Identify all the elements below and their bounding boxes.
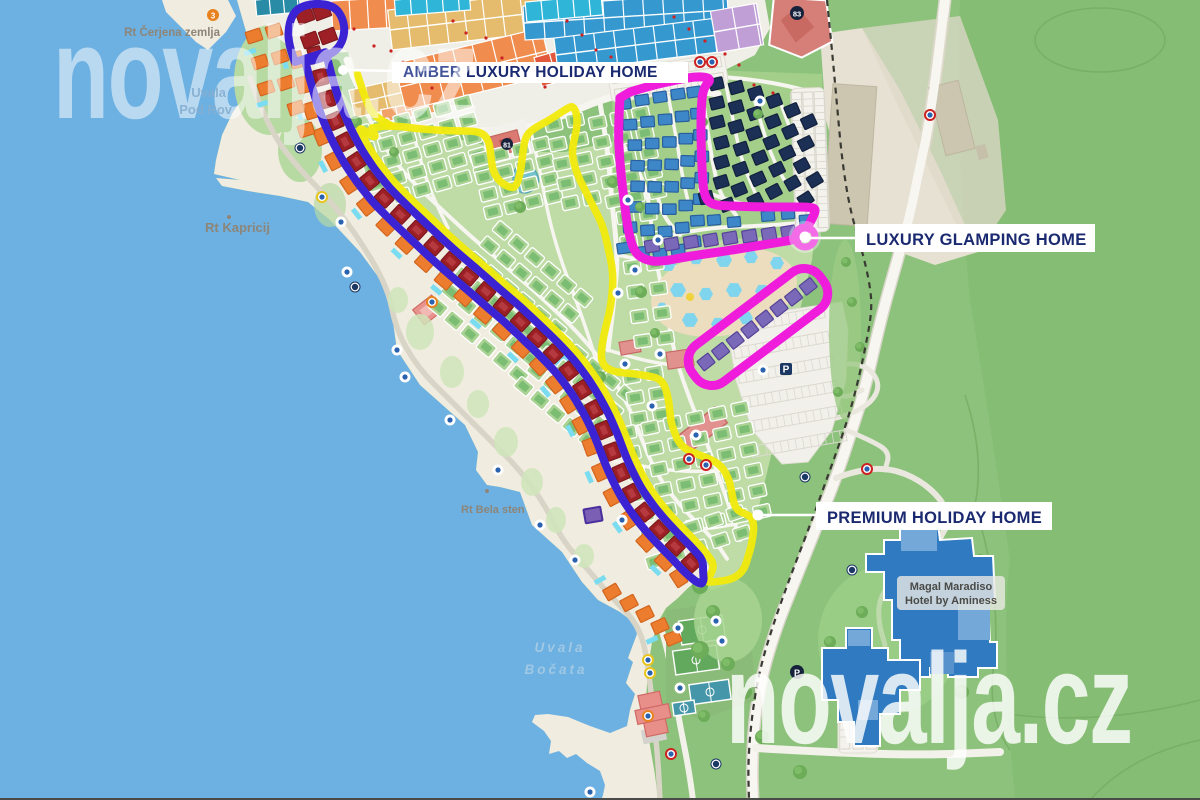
svg-text:Rt Bela sten: Rt Bela sten (461, 504, 525, 516)
svg-text:Hotel by Aminess: Hotel by Aminess (905, 595, 997, 607)
svg-text:83: 83 (793, 10, 801, 19)
svg-text:Rt Kapricij: Rt Kapricij (205, 220, 270, 235)
svg-text:81: 81 (503, 143, 511, 150)
svg-text:Magal Maradiso: Magal Maradiso (910, 581, 993, 593)
svg-text:Uvala: Uvala (191, 85, 226, 100)
svg-text:PREMIUM HOLIDAY HOME: PREMIUM HOLIDAY HOME (827, 509, 1042, 527)
svg-text:Uvala: Uvala (534, 640, 585, 655)
svg-text:novalja.cz: novalja.cz (726, 627, 1132, 771)
svg-text:P: P (783, 365, 790, 376)
svg-text:Pod Rov: Pod Rov (179, 102, 232, 117)
svg-text:novalja.cz: novalja.cz (53, 0, 477, 146)
svg-text:Bočata: Bočata (524, 662, 587, 677)
svg-text:LUXURY GLAMPING HOME: LUXURY GLAMPING HOME (866, 231, 1087, 249)
